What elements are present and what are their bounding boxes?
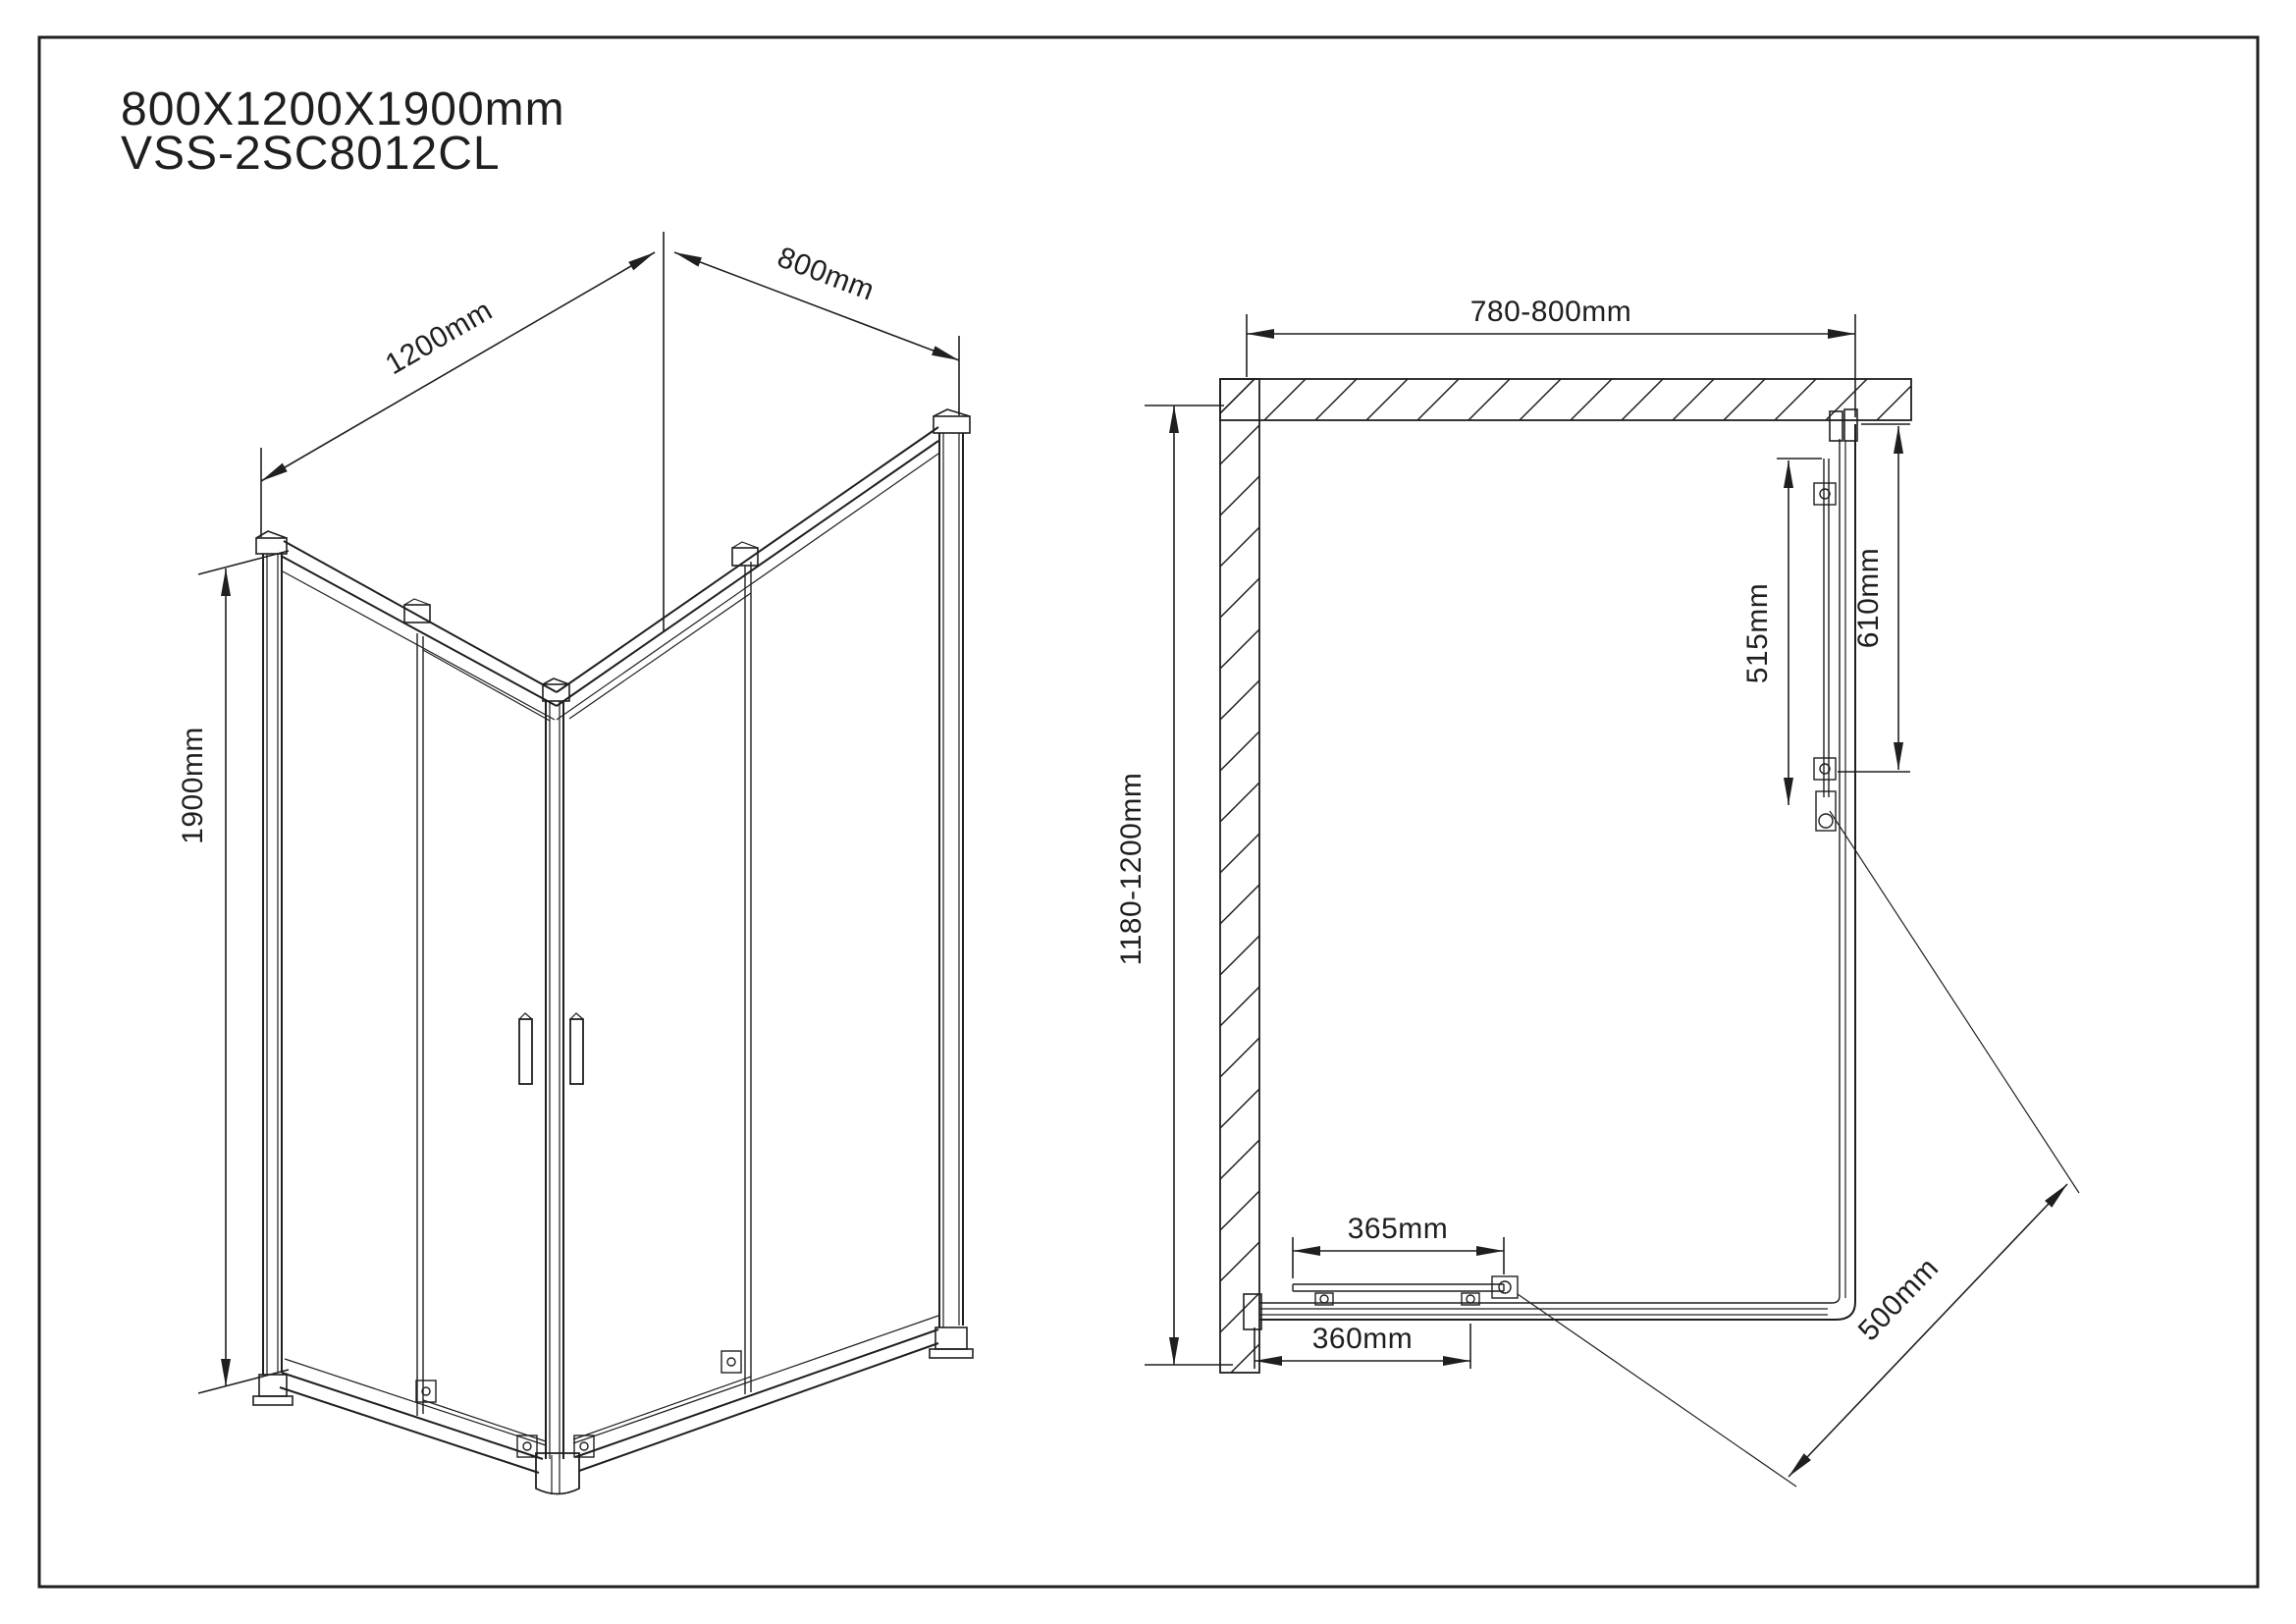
plan-dim-500: 500mm: [1518, 811, 2079, 1487]
iso-corner-post: [543, 678, 569, 1459]
iso-left-post: [253, 531, 293, 1405]
plan-dim-365-label: 365mm: [1348, 1213, 1449, 1245]
title-model: VSS-2SC8012CL: [121, 128, 501, 180]
iso-top-rail-left: [281, 541, 557, 720]
plan-top-wall: [1220, 379, 1911, 420]
iso-dim-height-label: 1900mm: [177, 727, 209, 844]
iso-dim-depth: 800mm: [674, 241, 959, 415]
plan-dim-360-label: 360mm: [1312, 1323, 1414, 1355]
iso-top-rail-right: [557, 427, 938, 720]
iso-bottom-rail-right: [573, 1316, 938, 1471]
iso-dim-height: 1900mm: [177, 551, 289, 1393]
iso-door-edges: [423, 593, 751, 1441]
plan-left-wall: [1220, 379, 1259, 1373]
plan-dim-365: 365mm: [1293, 1213, 1504, 1278]
iso-divider-right: [745, 562, 751, 1394]
iso-dim-width: 1200mm: [261, 232, 664, 631]
plan-dim-610: 610mm: [1838, 424, 1910, 772]
iso-right-post: [930, 409, 973, 1358]
plan-dim-left-label: 1180-1200mm: [1115, 773, 1148, 966]
plan-dim-top-label: 780-800mm: [1470, 296, 1632, 328]
technical-drawing: 800X1200X1900mm VSS-2SC8012CL 1200mm 800…: [0, 0, 2296, 1624]
sheet-border: [39, 37, 2258, 1587]
plan-dim-515-label: 515mm: [1741, 583, 1774, 684]
plan-dim-360: 360mm: [1255, 1323, 1470, 1369]
plan-view: 780-800mm 1180-1200mm: [1115, 296, 2079, 1487]
drawing-sheet: 800X1200X1900mm VSS-2SC8012CL 1200mm 800…: [0, 0, 2296, 1624]
iso-bottom-rail-left: [280, 1359, 546, 1473]
iso-handle-right: [570, 1013, 583, 1084]
iso-dim-depth-label: 800mm: [774, 241, 880, 306]
iso-dim-width-label: 1200mm: [380, 294, 498, 381]
title-block: 800X1200X1900mm VSS-2SC8012CL: [121, 83, 565, 180]
iso-divider-left: [417, 633, 423, 1416]
plan-right-panel: [1259, 409, 1857, 1320]
iso-handle-left: [519, 1013, 532, 1084]
isometric-view: 1200mm 800mm 1900mm: [177, 232, 973, 1494]
plan-dim-left: 1180-1200mm: [1115, 406, 1233, 1365]
plan-dim-500-label: 500mm: [1852, 1252, 1946, 1347]
plan-dim-515: 515mm: [1741, 459, 1822, 805]
plan-dim-610-label: 610mm: [1852, 548, 1885, 649]
